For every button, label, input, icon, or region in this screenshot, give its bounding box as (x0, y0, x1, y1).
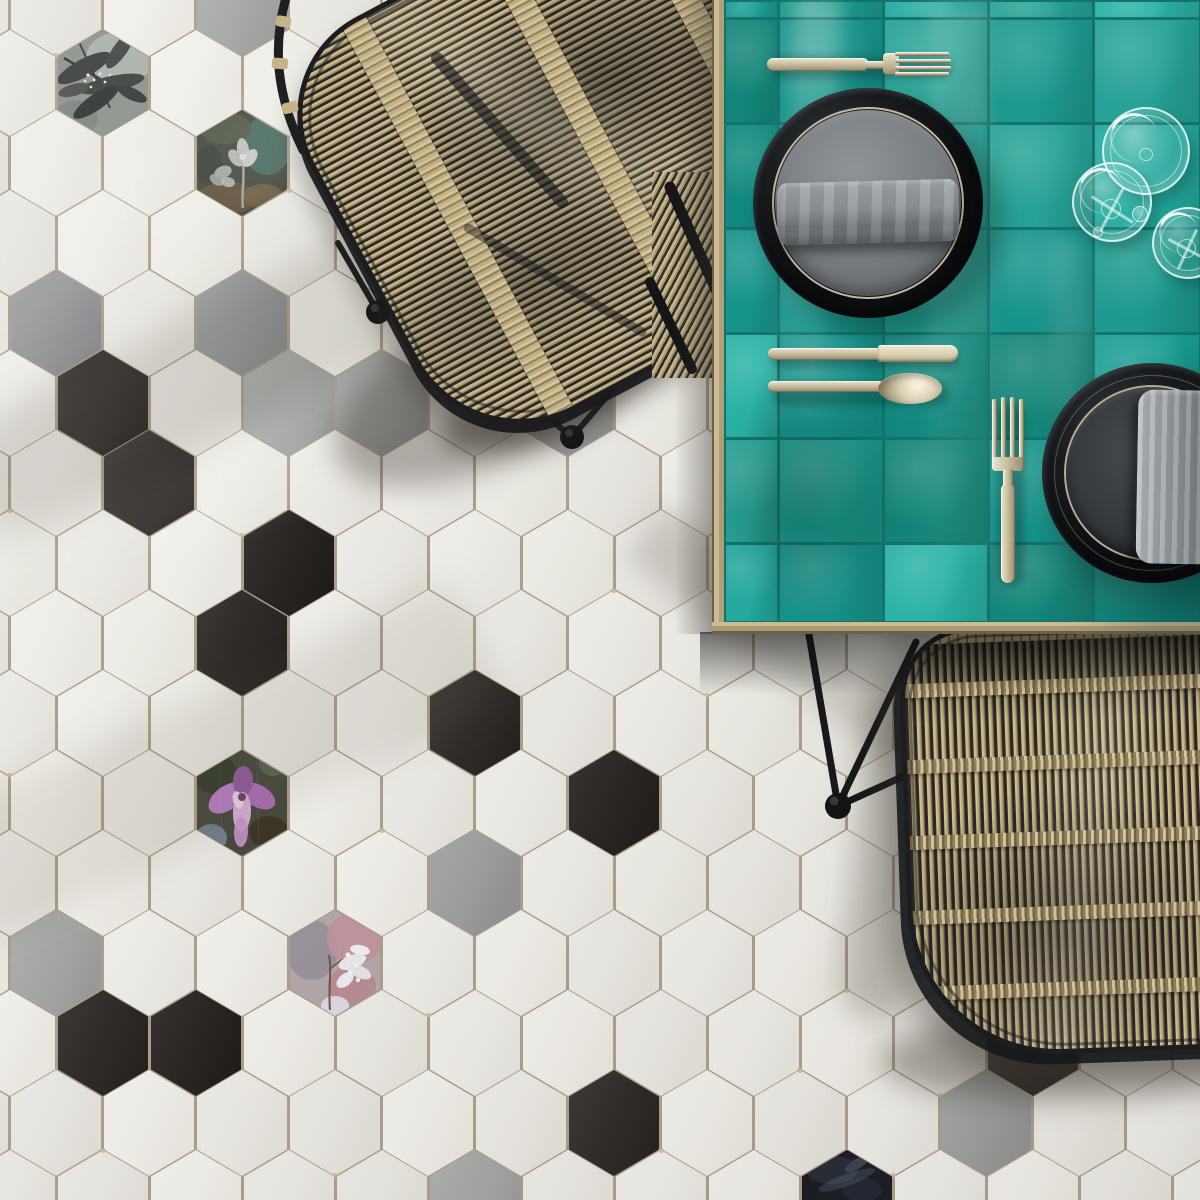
glass-bubble (1093, 227, 1103, 237)
spoon (768, 373, 944, 404)
chair-frame-inner-rim (906, 623, 1200, 1051)
grout-chip (286, 188, 292, 193)
glass-base-spoke (1178, 229, 1199, 269)
glass-base (1177, 239, 1196, 258)
rattan-chair-top-edge (652, 172, 714, 378)
glaze-dark-patch (712, 380, 902, 622)
teal-tile (1095, 2, 1199, 17)
fork-tine (895, 59, 951, 63)
glass-stem (1139, 148, 1152, 161)
fork-handle (1001, 483, 1015, 583)
grout-chip (7, 508, 13, 513)
fork-tine (1010, 397, 1015, 461)
rolled-napkin (1135, 389, 1200, 564)
grout-chip (100, 1148, 106, 1153)
teal-tile (990, 2, 1092, 17)
fork-tine (1001, 397, 1006, 461)
grout-chip (379, 828, 385, 833)
glass-base-spoke (1099, 187, 1124, 231)
fork-1 (767, 50, 949, 78)
grout-chip (844, 988, 850, 993)
knife (768, 345, 958, 363)
grout-chip (611, 588, 617, 593)
dining-table (712, 0, 1200, 634)
spoon-bowl (878, 373, 942, 404)
fork-tine (992, 399, 997, 461)
glass-base-spoke (1091, 195, 1134, 223)
glass-bubble (1132, 206, 1148, 222)
glass-base (1101, 199, 1121, 219)
fork-handle (767, 58, 869, 71)
fork-tine (895, 72, 949, 76)
dining-scene (0, 0, 1200, 1200)
knife-blade (878, 345, 958, 362)
folded-napkin (776, 179, 960, 246)
teal-tile (990, 20, 1092, 122)
fork-2 (992, 397, 1024, 585)
knife-handle (768, 348, 882, 360)
wine-glass-2 (1072, 162, 1152, 242)
glass-base-spoke (1168, 238, 1200, 261)
grout-chip (658, 1148, 664, 1153)
spoon-handle (768, 381, 884, 392)
teal-tile (726, 2, 777, 17)
grout-chip (797, 1068, 803, 1073)
fork-tine (895, 66, 951, 70)
fork-tine (895, 52, 949, 56)
rattan-chair-bottom (898, 615, 1200, 1059)
fork-tine (1019, 399, 1024, 461)
